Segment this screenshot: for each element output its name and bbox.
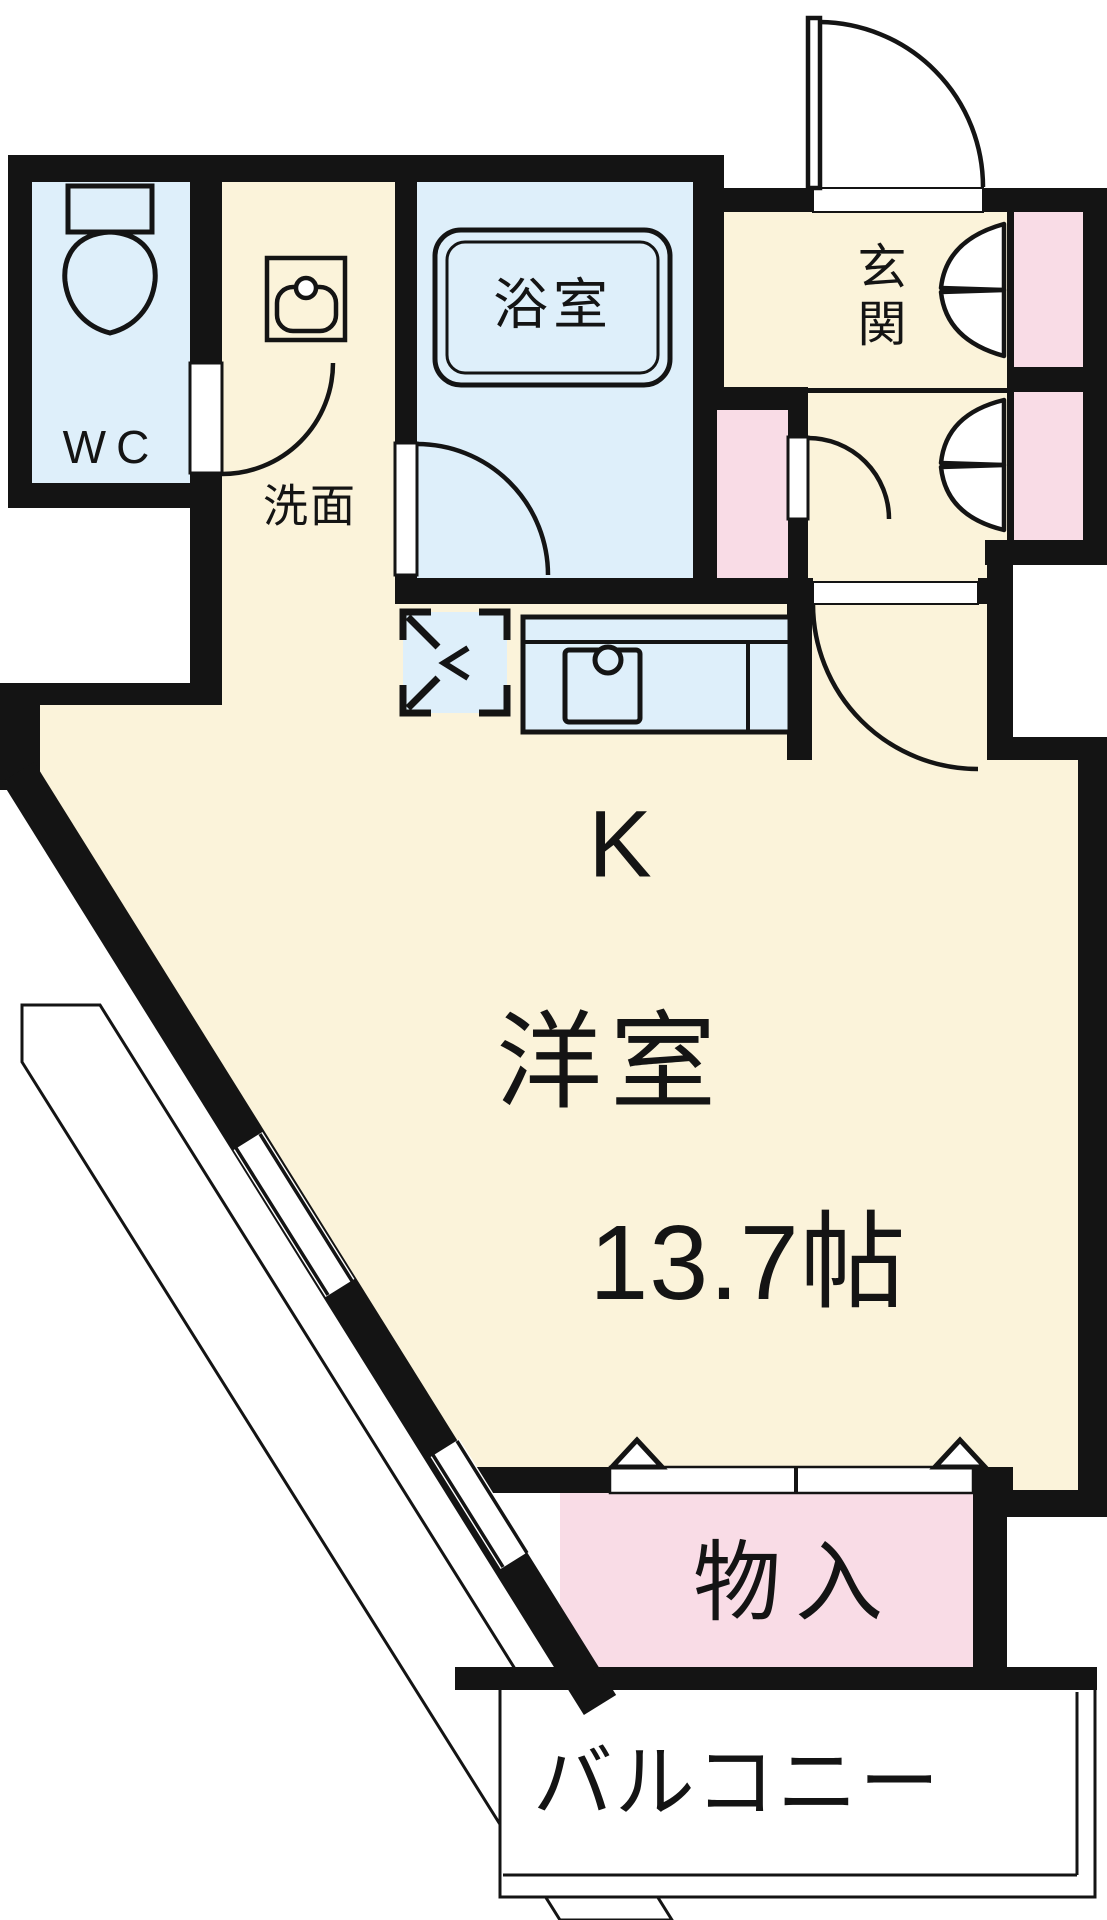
floor-plan-page: WC 洗面 浴室 玄関 K 洋室 13.7帖 物入 バルコニー — [0, 0, 1107, 1920]
label-washroom: 洗面 — [263, 484, 357, 529]
label-room-area: 13.7帖 — [589, 1210, 906, 1316]
label-bathroom: 浴室 — [493, 278, 613, 333]
label-storage: 物入 — [693, 1539, 897, 1627]
kitchen-counter-icon — [523, 617, 790, 732]
label-entrance: 玄関 — [853, 241, 902, 355]
refrigerator-space-icon — [403, 612, 507, 713]
label-western-room: 洋室 — [496, 1010, 724, 1116]
label-kitchen: K — [588, 798, 651, 893]
label-balcony: バルコニー — [533, 1743, 941, 1823]
label-wc: WC — [63, 424, 160, 470]
